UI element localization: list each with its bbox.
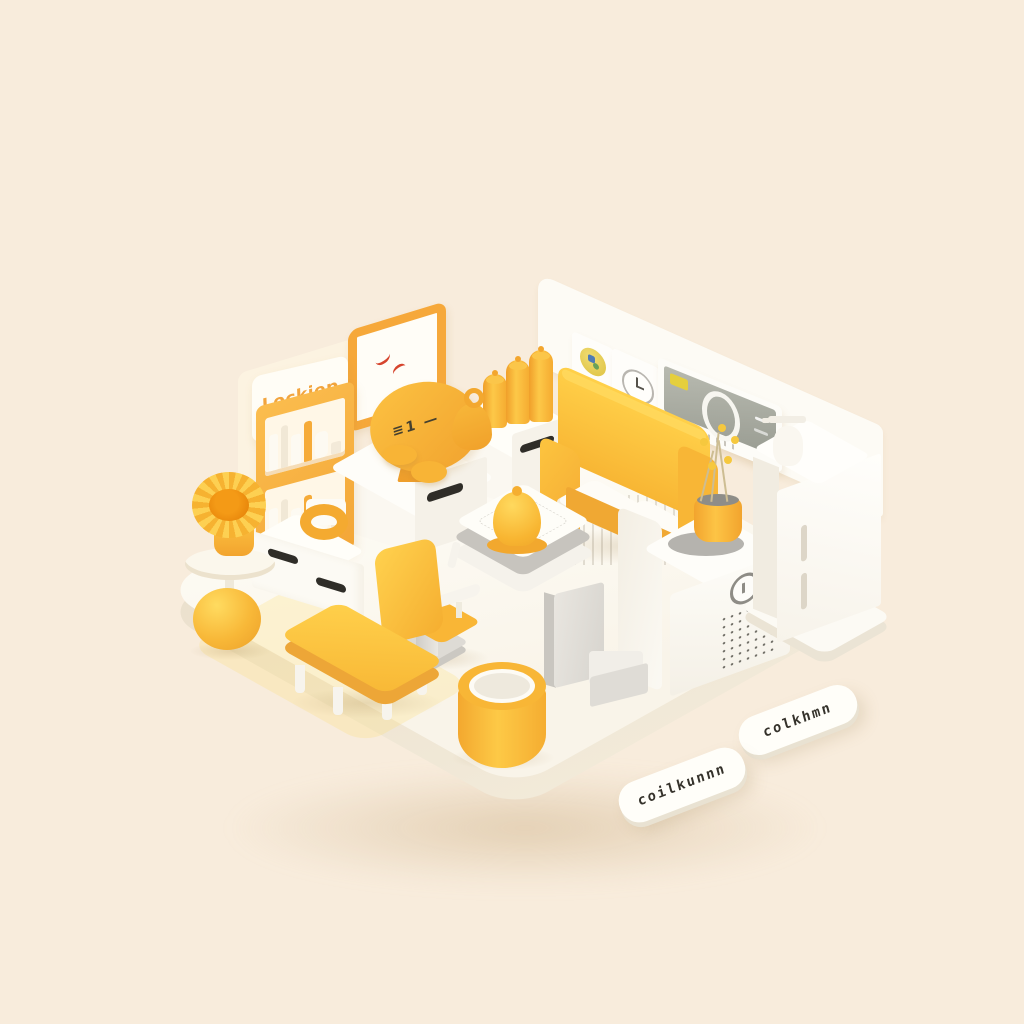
bell [493,492,541,546]
door-handle [801,572,807,610]
bin-inner-shade [474,673,530,699]
book [281,425,288,469]
flower-bud [731,436,739,444]
step-stool [540,588,658,720]
drawer-handle-slot [316,576,346,593]
soap-dispenser-pump [768,416,806,423]
cabinet-side [753,457,779,620]
door-handle [801,524,807,562]
disc-marks-text: ≡1 — [391,410,440,441]
clock-mark-icon [373,348,391,368]
round-pad [383,445,417,465]
tall-cabinet [745,420,895,655]
name-tag-text: colkhmn [762,699,834,741]
dried-flower-vase [694,498,742,542]
book [269,433,278,471]
book [331,440,341,455]
chair-post [447,541,461,568]
panel-badge [670,373,688,391]
flower-bud [724,456,732,464]
flower-bud [718,424,726,432]
soap-dispenser [773,426,803,466]
round-pad [411,461,447,483]
flower-bud [700,438,708,446]
book [291,433,301,466]
candle-cylinder [506,360,530,424]
low-table [278,608,458,723]
ring-ornament [300,504,348,540]
clock-mark-icon [391,361,407,379]
ring-ornament-set [298,492,360,542]
sphere-vase [193,588,261,650]
isometric-room-illustration: Lockiep ≡1 — [0,0,1024,1024]
book [315,430,328,459]
table-leg [333,687,343,715]
flower-bud [708,462,716,470]
book [304,420,312,462]
name-tag-upper: colkhmn [733,679,863,761]
sunflower-icon [192,472,266,538]
table-leg [295,665,305,693]
waste-bin [458,662,550,772]
